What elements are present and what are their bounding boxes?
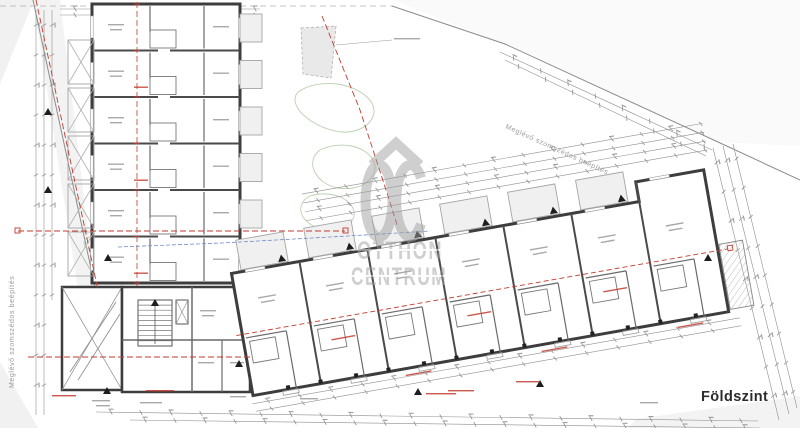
watermark-line2: CENTRUM	[351, 263, 447, 291]
column-symbol	[558, 337, 563, 342]
dimension-number-mark	[612, 154, 617, 155]
dimension-tick	[753, 275, 757, 279]
dimension-number-mark	[761, 334, 762, 339]
left-wing-group	[68, 2, 262, 286]
column-symbol	[286, 385, 291, 390]
room-label-mark	[108, 164, 124, 165]
balcony	[240, 14, 262, 42]
dimension-number-mark	[775, 393, 776, 398]
room-label-mark	[213, 119, 229, 120]
survey-point-marker	[44, 186, 52, 193]
gray-note-mark	[640, 402, 658, 403]
room-label-mark	[108, 257, 124, 258]
column-symbol	[318, 379, 323, 384]
column-symbol	[422, 361, 427, 366]
red-note-mark	[146, 390, 174, 391]
dimension-tick	[782, 392, 786, 396]
column-symbol	[658, 319, 663, 324]
red-note-mark	[134, 87, 148, 88]
balcony	[240, 107, 262, 135]
dimension-number-mark	[314, 188, 319, 189]
watermark: OC OTTHON CENTRUM	[346, 143, 452, 291]
column-symbol	[590, 331, 595, 336]
room-area-mark	[110, 215, 122, 216]
dimension-number-mark	[391, 375, 396, 376]
drawing-sheet: OC OTTHON CENTRUM Meglévő szomszédos beé…	[0, 0, 800, 428]
gray-note-mark	[92, 400, 110, 401]
dimension-number-mark	[491, 157, 496, 158]
column-symbol	[454, 355, 459, 360]
dimension-number-mark	[494, 175, 499, 176]
dimension-number-mark	[719, 159, 720, 164]
floor-plan-canvas: OC OTTHON CENTRUM Meglévő szomszédos beé…	[0, 0, 800, 428]
micro-text-mark	[230, 362, 244, 363]
gray-note-mark	[96, 405, 110, 406]
neighbor-building-patch	[301, 26, 336, 78]
window-symbol	[91, 16, 94, 38]
column-symbol	[626, 325, 631, 330]
red-note-mark	[52, 395, 76, 396]
paper-corner-top-left	[0, 0, 34, 84]
right-wing-group	[214, 117, 758, 414]
watermark-line1: OTTHON	[357, 237, 443, 265]
dimension-number-mark	[772, 332, 773, 337]
dimension-number-mark	[758, 274, 759, 279]
room-label-mark	[213, 259, 229, 260]
dimension-number-mark	[432, 167, 437, 168]
terrace-bay	[68, 40, 94, 84]
dimension-tick	[761, 304, 765, 308]
room-label-mark	[213, 166, 229, 167]
dimension-tick	[732, 188, 736, 192]
room-label-mark	[213, 26, 229, 27]
dimension-number-mark	[729, 157, 730, 162]
dimension-tick	[739, 217, 743, 221]
dimension-number-mark	[671, 143, 676, 144]
room-label-mark	[108, 71, 124, 72]
dimension-number-mark	[265, 398, 270, 399]
dimension-number-mark	[786, 390, 787, 395]
stencil-slit	[352, 249, 448, 251]
red-note-mark	[516, 381, 540, 382]
dimension-number-mark	[317, 206, 322, 207]
dimension-number-mark	[643, 331, 648, 332]
stencil-slit	[346, 275, 452, 277]
room-label-mark	[213, 73, 229, 74]
room-label-mark	[108, 117, 124, 118]
room-label-mark	[108, 210, 124, 211]
gray-note-mark	[230, 396, 246, 397]
dimension-number-mark	[743, 216, 744, 221]
stair-core-group	[122, 287, 250, 392]
micro-text-mark	[200, 310, 216, 311]
dimension-tick	[775, 363, 779, 367]
red-note-mark	[134, 180, 148, 181]
vegetation-contour	[295, 83, 374, 132]
dimension-number-mark	[454, 364, 459, 365]
balcony	[240, 154, 262, 182]
column-symbol	[386, 367, 391, 372]
micro-text-mark	[202, 315, 214, 316]
dimension-number-mark	[435, 185, 440, 186]
dimension-number-mark	[580, 342, 585, 343]
red-note-mark	[134, 273, 148, 274]
window-symbol	[91, 202, 94, 224]
room-area-mark	[110, 169, 122, 170]
dimension-tick	[725, 159, 729, 163]
neighbor-parcel-area	[392, 0, 800, 146]
boundary-label-left: Meglévő szomszédos beépítés	[9, 276, 16, 388]
column-symbol	[694, 313, 699, 318]
column-symbol	[522, 343, 527, 348]
room-area-mark	[110, 76, 122, 77]
balcony	[240, 200, 262, 228]
column-symbol	[354, 373, 359, 378]
survey-point-marker	[414, 388, 422, 395]
balcony	[240, 61, 262, 89]
micro-text-mark	[198, 362, 214, 363]
floor-title: Földszint	[701, 389, 768, 405]
dimension-number-mark	[517, 353, 522, 354]
room-area-mark	[110, 29, 122, 30]
dimension-number-mark	[609, 136, 614, 137]
section-marker	[15, 228, 20, 233]
column-symbol	[490, 349, 495, 354]
paper-corner-bottom-left	[0, 362, 38, 428]
dimension-number-mark	[553, 164, 558, 165]
dimension-tick	[768, 334, 772, 338]
room-label-mark	[108, 24, 124, 25]
dimension-number-mark	[668, 126, 673, 127]
red-note-mark	[426, 393, 456, 394]
red-note-mark	[448, 390, 474, 391]
gray-note-mark	[300, 398, 318, 399]
gray-note-mark	[140, 402, 162, 403]
gray-note-mark	[394, 38, 420, 39]
garage-hall-group	[62, 287, 122, 390]
dimension-number-mark	[328, 387, 333, 388]
room-label-mark	[213, 212, 229, 213]
room-area-mark	[110, 262, 122, 263]
dimension-tick	[746, 246, 750, 250]
room-area-mark	[110, 122, 122, 123]
dimension-number-mark	[376, 195, 381, 196]
leader-line	[336, 40, 392, 45]
dimension-number-mark	[733, 218, 734, 223]
